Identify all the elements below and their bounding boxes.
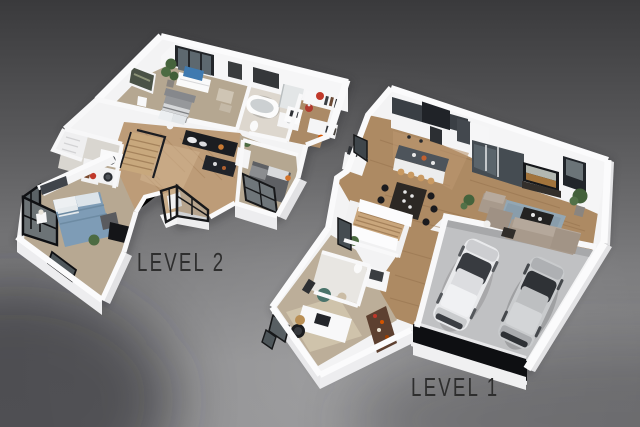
svg-text:LEVEL 1: LEVEL 1 xyxy=(411,372,499,402)
svg-text:LEVEL 2: LEVEL 2 xyxy=(137,247,225,277)
